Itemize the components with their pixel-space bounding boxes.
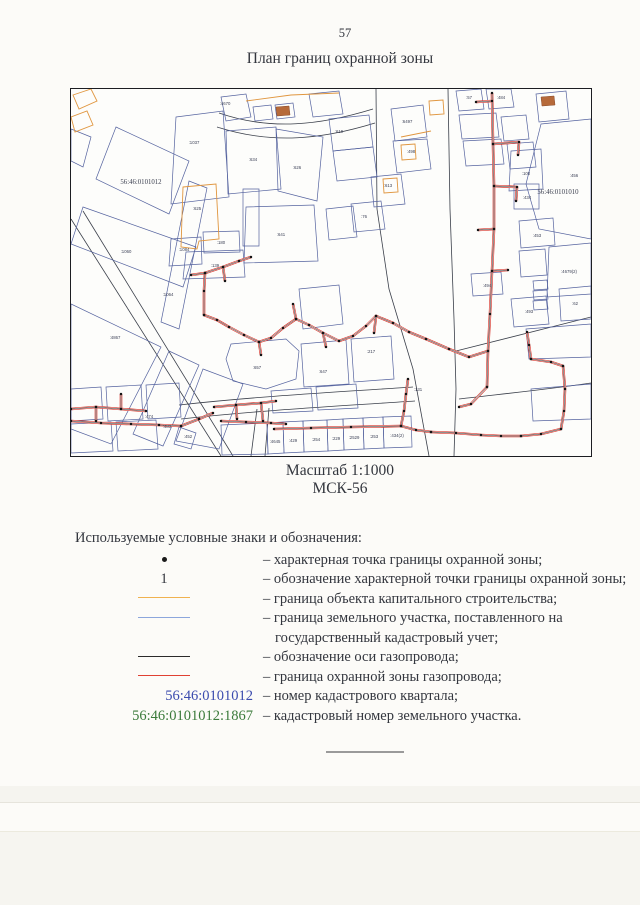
legend-row: – характерная точка границы охранной зон… [75, 551, 615, 571]
document-page: 57 План границ охранной зоны :4670:1037:… [0, 0, 640, 905]
legend-description: – характерная точка границы охранной зон… [261, 551, 627, 571]
boundary-point-dot [243, 334, 245, 336]
legend-symbol-point-dot [75, 551, 253, 571]
boundary-point-dot [455, 432, 457, 434]
scan-separator-line [326, 751, 404, 753]
boundary-point-dot [71, 420, 72, 422]
boundary-point-dot [491, 92, 493, 94]
parcel-number-label: :452 [184, 434, 193, 439]
parcel-boundary [519, 249, 547, 277]
road-line [217, 123, 375, 138]
boundary-point-dot [295, 318, 297, 320]
boundary-point-dot [408, 331, 410, 333]
boundary-point-dot [95, 420, 97, 422]
boundary-point-dot [492, 143, 494, 145]
boundary-point-dot [350, 426, 352, 428]
boundary-point-dot [415, 429, 417, 431]
filled-structure [541, 96, 555, 106]
parcel-number-label: :453 [533, 233, 542, 238]
scan-artifact-band [0, 831, 640, 905]
legend-description: – граница охранной зоны газопровода; [261, 668, 627, 688]
boundary-point-dot [282, 327, 284, 329]
parcel-boundary [507, 142, 536, 169]
boundary-point-dot [325, 346, 327, 348]
boundary-point-dot [491, 100, 493, 102]
parcel-number-label: :253 [370, 434, 379, 439]
boundary-point-dot [222, 266, 224, 268]
boundary-point-dot [425, 338, 427, 340]
boundary-point-dot [285, 423, 287, 425]
boundary-point-dot [475, 101, 477, 103]
parcel-number-label: :657 [253, 365, 262, 370]
parcel-boundary [71, 129, 91, 167]
parcel-number-label: :434 [523, 195, 532, 200]
pipeline-band-core [494, 186, 517, 201]
filled-structure [276, 106, 290, 116]
boundary-point-dot [216, 319, 218, 321]
boundary-point-dot [487, 350, 489, 352]
caption-crs: МСК-56 [0, 480, 640, 498]
boundary-point-dot [220, 420, 222, 422]
legend-description: – обозначение оси газопровода; [261, 648, 627, 668]
parcel-number-label: :647 [319, 369, 328, 374]
pipeline-axis [494, 186, 517, 201]
parcel-boundary [533, 300, 548, 310]
page-title: План границ охранной зоны [0, 50, 640, 68]
boundary-point-dot [507, 269, 509, 271]
boundary-point-dot [322, 332, 324, 334]
boundary-point-dot [95, 406, 97, 408]
legend-symbol-line [75, 609, 253, 629]
parcel-boundary [526, 119, 591, 239]
parcel-number-label: :180 [217, 240, 226, 245]
boundary-point-dot [470, 403, 472, 405]
parcel-boundary [283, 421, 304, 453]
boundary-point-dot [228, 326, 230, 328]
point-dot-icon [162, 557, 167, 562]
boundary-point-dot [204, 272, 206, 274]
parcel-boundary [526, 324, 591, 359]
parcel-number-label: :254 [312, 437, 321, 442]
building-outline [429, 100, 444, 115]
legend: Используемые условные знаки и обозначени… [75, 529, 615, 726]
boundary-point-dot [250, 256, 252, 258]
legend-symbol-line [75, 648, 253, 668]
boundary-point-dot [71, 408, 72, 410]
boundary-point-dot [203, 290, 205, 292]
boundary-point-dot [480, 434, 482, 436]
boundary-point-dot [564, 388, 566, 390]
parcel-number-label: :4670 [220, 101, 231, 106]
boundary-point-dot [213, 406, 215, 408]
boundary-point-dot [540, 433, 542, 435]
boundary-point-dot [486, 386, 488, 388]
boundary-point-dot [273, 428, 275, 430]
road-line [179, 387, 413, 405]
boundary-point-dot [158, 424, 160, 426]
cadastral-quarter-label: 56:46:0101012 [120, 179, 162, 186]
parcel-number-label: :634 [249, 157, 258, 162]
boundary-point-dot [275, 400, 277, 402]
boundary-point-dot [120, 408, 122, 410]
boundary-point-dot [563, 410, 565, 412]
boundary-point-dot [120, 393, 122, 395]
legend-row: 56:46:0101012– номер кадастрового кварта… [75, 687, 615, 707]
parcel-number-label: :429 [289, 438, 298, 443]
parcel-boundary [327, 419, 344, 451]
boundary-point-dot [493, 185, 495, 187]
parcel-boundary [533, 280, 548, 290]
parcel-boundary [343, 418, 364, 450]
boundary-point-dot [400, 425, 402, 427]
parcel-boundary [363, 417, 384, 449]
parcel-number-label: :493 [525, 309, 534, 314]
boundary-point-dot [180, 425, 182, 427]
legend-description: – номер кадастрового квартала; [261, 687, 627, 707]
parcel-boundary [267, 422, 284, 454]
legend-description: – граница земельного участка, поставленн… [261, 609, 627, 648]
boundary-point-dot [518, 141, 520, 143]
parcel-number-label: :1064 [163, 292, 174, 297]
line-sample-icon [138, 597, 190, 598]
road-line [456, 317, 591, 351]
boundary-point-dot [517, 154, 519, 156]
legend-rows: – характерная точка границы охранной зон… [75, 551, 615, 727]
parcel-number-label: :498 [407, 149, 416, 154]
road-line [251, 409, 257, 456]
parcel-number-label: :62 [572, 301, 579, 306]
boundary-point-dot [292, 303, 294, 305]
boundary-point-dot [403, 410, 405, 412]
legend-symbol-line [75, 590, 253, 610]
parcel-boundary [161, 181, 207, 329]
boundary-point-dot [212, 412, 214, 414]
boundary-point-dot [550, 361, 552, 363]
boundary-point-dot [491, 270, 493, 272]
parcel-number-label: :4645 [270, 439, 281, 444]
parcel-number-label: :57 [466, 95, 473, 100]
parcel-number-label: :1037 [189, 140, 200, 145]
parcel-boundary [501, 115, 529, 141]
parcel-boundary [326, 206, 357, 240]
line-sample-icon [138, 675, 190, 676]
parcel-number-label: :139 [211, 263, 220, 268]
parcel-boundary [71, 387, 103, 421]
boundary-point-dot [375, 315, 377, 317]
parcel-number-label: :494 [483, 283, 492, 288]
boundary-point-dot [262, 420, 264, 422]
parcel-number-label: :1060 [121, 249, 132, 254]
parcel-boundary [253, 105, 273, 121]
boundary-point-dot [198, 418, 200, 420]
boundary-point-dot [392, 322, 394, 324]
road-line [376, 89, 429, 456]
boundary-point-dot [235, 404, 237, 406]
boundary-point-dot [477, 229, 479, 231]
legend-symbol-text: 56:46:0101012 [75, 687, 253, 707]
parcel-boundary [456, 89, 484, 111]
building-outline [73, 89, 97, 109]
parcel-number-label: :1084 [179, 247, 190, 252]
road-line [181, 401, 415, 419]
boundary-point-dot [516, 186, 518, 188]
boundary-point-dot [500, 435, 502, 437]
boundary-point-dot [430, 431, 432, 433]
line-sample-icon [138, 617, 190, 618]
protection-zone-boundary [494, 186, 517, 201]
parcel-number-label: :619 [335, 129, 344, 134]
scan-artifact-band [0, 786, 640, 803]
boundary-point-dot [489, 313, 491, 315]
boundary-point-dot [260, 354, 262, 356]
caption-scale: Масштаб 1:1000 [0, 462, 640, 480]
parcel-boundary [351, 336, 394, 382]
legend-row: – обозначение оси газопровода; [75, 648, 615, 668]
boundary-point-dot [308, 324, 310, 326]
boundary-point-dot [458, 406, 460, 408]
map-caption: Масштаб 1:1000 МСК-56 [0, 462, 640, 498]
parcel-number-label: :4679(2) [561, 269, 578, 274]
road-line [448, 89, 456, 456]
boundary-point-dot [236, 418, 238, 420]
legend-row: – граница земельного участка, поставленн… [75, 609, 615, 648]
pipeline-axis [204, 315, 488, 357]
boundary-point-dot [224, 280, 226, 282]
parcel-number-label: :483 [163, 424, 172, 429]
legend-row: 1– обозначение характерной точки границы… [75, 570, 615, 590]
legend-description: – обозначение характерной точки границы … [261, 570, 627, 590]
parcel-boundary [303, 420, 328, 452]
cadastral-quarter-label: 56:46:0101010 [537, 189, 579, 196]
parcel-number-label: :434(2) [390, 433, 404, 438]
boundary-point-dot [530, 358, 532, 360]
boundary-point-dot [190, 274, 192, 276]
boundary-point-dot [407, 378, 409, 380]
parcel-number-label: :484 [497, 95, 506, 100]
building-outline [71, 111, 93, 132]
parcel-number-label: :2529 [349, 435, 360, 440]
boundary-point-dot [493, 228, 495, 230]
map-frame: :4670:1037:634:626:625:641:180:139:1084:… [70, 88, 592, 457]
parcel-number-label: :4867 [110, 335, 121, 340]
legend-description: – кадастровый номер земельного участка. [261, 707, 627, 727]
legend-row: – граница объекта капитального строитель… [75, 590, 615, 610]
legend-symbol-line [75, 668, 253, 688]
parcel-number-label: :229 [332, 436, 341, 441]
parcel-boundary [71, 422, 113, 453]
boundary-point-dot [365, 325, 367, 327]
page-number: 57 [0, 26, 640, 41]
parcel-boundary [71, 207, 196, 287]
boundary-point-dot [260, 402, 262, 404]
boundary-point-dot [100, 422, 102, 424]
legend-description: – граница объекта капитального строитель… [261, 590, 627, 610]
boundary-point-dot [310, 427, 312, 429]
parcel-boundary [106, 385, 143, 421]
boundary-point-dot [245, 421, 247, 423]
boundary-point-dot [373, 332, 375, 334]
legend-row: – граница охранной зоны газопровода; [75, 668, 615, 688]
boundary-point-dot [352, 335, 354, 337]
boundary-point-dot [520, 435, 522, 437]
parcel-number-label: :100 [522, 171, 531, 176]
parcel-boundary [533, 290, 548, 300]
boundary-point-dot [203, 314, 205, 316]
boundary-point-dot [515, 200, 517, 202]
legend-row: 56:46:0101012:1867– кадастровый номер зе… [75, 707, 615, 727]
road-line [83, 211, 233, 456]
parcel-boundary [171, 111, 229, 204]
parcel-number-label: :76 [361, 214, 368, 219]
parcel-boundary [96, 127, 189, 214]
boundary-point-dot [448, 348, 450, 350]
boundary-point-dot [526, 331, 528, 333]
boundary-point-dot [338, 340, 340, 342]
parcel-number-label: :217 [367, 349, 376, 354]
parcel-number-label: :641 [277, 232, 286, 237]
legend-heading: Используемые условные знаки и обозначени… [75, 529, 615, 549]
boundary-point-dot [238, 260, 240, 262]
boundary-point-dot [270, 422, 272, 424]
line-sample-icon [138, 656, 190, 657]
boundary-point-dot [270, 337, 272, 339]
parcel-boundary [133, 351, 199, 446]
parcel-number-label: :474 [145, 414, 154, 419]
parcel-number-label: :613 [384, 183, 393, 188]
parcel-number-label: :131 [414, 387, 423, 392]
boundary-point-dot [468, 356, 470, 358]
parcel-boundary [221, 423, 268, 455]
boundary-point-dot [528, 344, 530, 346]
parcel-number-label: :456 [570, 173, 579, 178]
boundary-point-dot [560, 428, 562, 430]
building-edge-line [246, 93, 339, 101]
boundary-point-dot [130, 423, 132, 425]
parcel-boundary [383, 416, 412, 448]
legend-symbol-text: 1 [75, 570, 253, 590]
boundary-point-dot [562, 365, 564, 367]
cadastral-map-svg: :4670:1037:634:626:625:641:180:139:1084:… [71, 89, 591, 456]
boundary-point-dot [258, 341, 260, 343]
legend-symbol-text: 56:46:0101012:1867 [75, 707, 253, 727]
parcel-boundary [309, 91, 343, 117]
boundary-point-dot [145, 410, 147, 412]
road-line [219, 109, 373, 124]
parcel-boundary [221, 94, 251, 121]
parcel-boundary [333, 147, 377, 181]
boundary-point-dot [405, 393, 407, 395]
parcel-number-label: :625 [193, 206, 202, 211]
parcel-number-label: :6497 [402, 119, 413, 124]
parcel-number-label: :626 [293, 165, 302, 170]
parcel-boundary [536, 91, 569, 122]
